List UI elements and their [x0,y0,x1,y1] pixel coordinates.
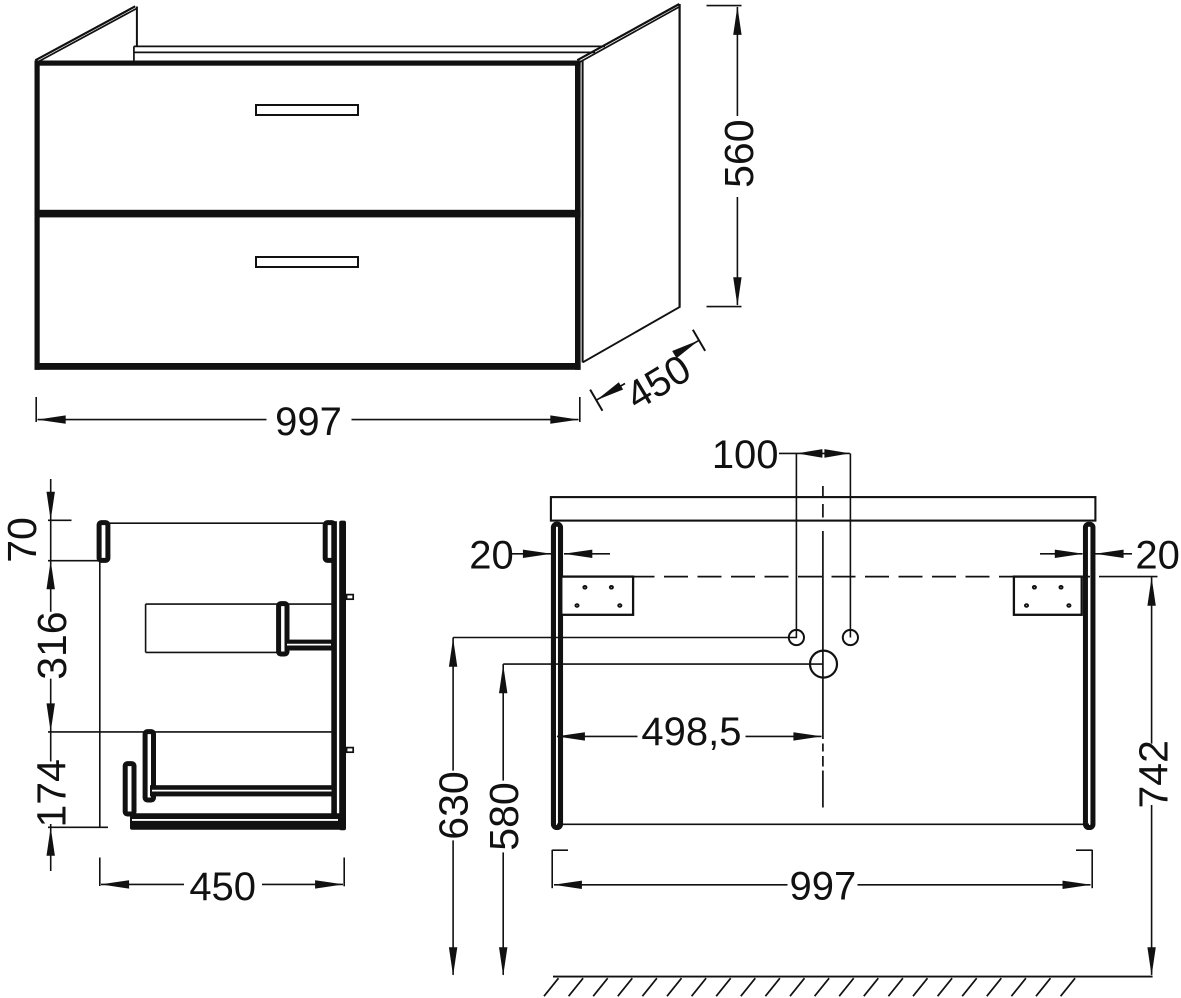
svg-text:997: 997 [790,864,857,908]
svg-text:20: 20 [1135,533,1180,577]
svg-text:100: 100 [712,433,779,477]
svg-text:20: 20 [469,533,514,577]
svg-text:174: 174 [28,759,74,827]
svg-text:70: 70 [0,517,45,563]
svg-text:742: 742 [1130,740,1176,808]
svg-text:498,5: 498,5 [641,710,741,754]
svg-text:450: 450 [189,865,256,909]
svg-text:316: 316 [29,611,75,679]
svg-text:580: 580 [481,782,527,850]
svg-text:560: 560 [716,119,762,187]
svg-text:630: 630 [431,771,477,839]
svg-text:997: 997 [275,400,342,444]
